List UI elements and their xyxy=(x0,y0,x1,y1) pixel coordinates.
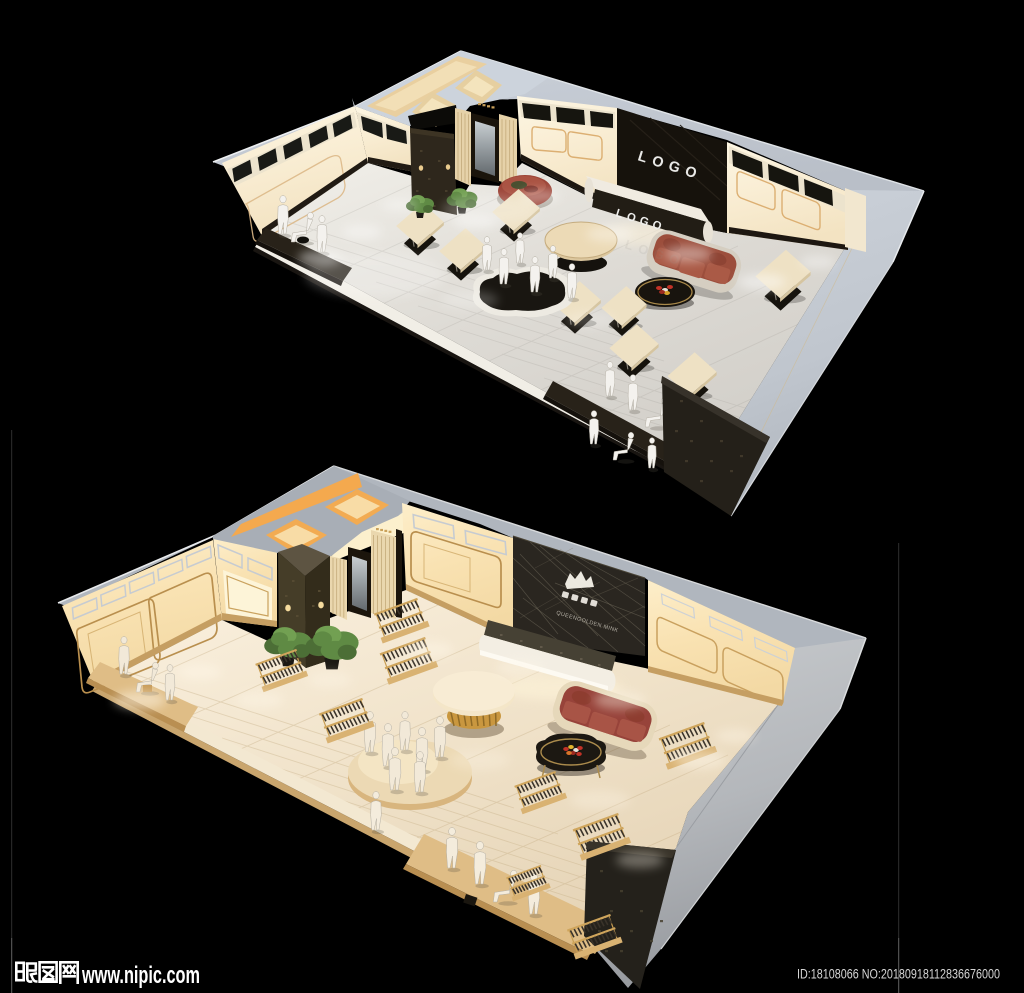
svg-text:ID:18108066 NO:201809181128366: ID:18108066 NO:20180918112836676000 xyxy=(797,967,1000,982)
svg-text:www.nipic.com: www.nipic.com xyxy=(81,962,200,989)
